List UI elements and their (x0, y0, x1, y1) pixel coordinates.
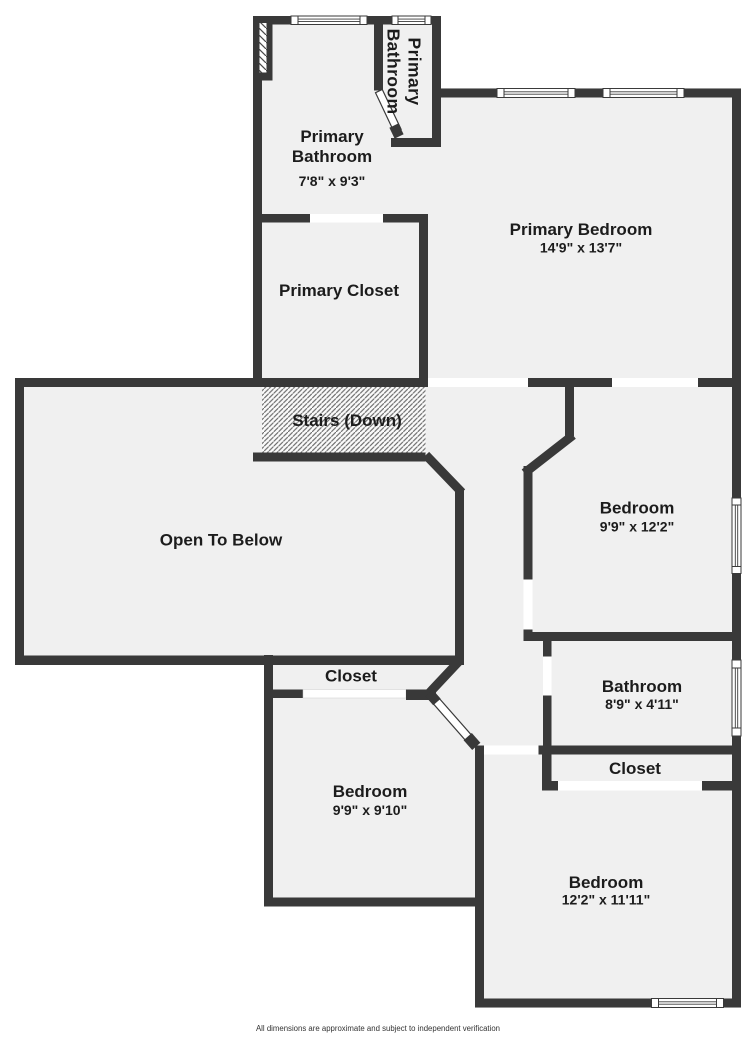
svg-text:All dimensions are approximate: All dimensions are approximate and subje… (256, 1024, 500, 1033)
svg-text:Bathroom: Bathroom (602, 677, 682, 696)
svg-text:Primary Closet: Primary Closet (279, 281, 399, 300)
svg-text:9'9" x 9'10": 9'9" x 9'10" (333, 802, 407, 818)
svg-text:8'9" x 4'11": 8'9" x 4'11" (605, 696, 679, 712)
svg-text:Primary: Primary (405, 38, 425, 106)
svg-text:Closet: Closet (325, 667, 377, 686)
svg-text:Open To Below: Open To Below (160, 531, 283, 550)
svg-text:Primary Bedroom: Primary Bedroom (510, 220, 653, 239)
svg-text:Bathroom: Bathroom (292, 147, 372, 166)
svg-text:12'2" x 11'11": 12'2" x 11'11" (562, 892, 650, 908)
svg-text:7'8" x 9'3": 7'8" x 9'3" (299, 173, 366, 189)
svg-text:14'9" x 13'7": 14'9" x 13'7" (540, 240, 622, 256)
svg-text:Primary: Primary (300, 127, 364, 146)
svg-text:Bedroom: Bedroom (569, 873, 644, 892)
svg-text:Bedroom: Bedroom (600, 499, 675, 518)
svg-text:Closet: Closet (609, 759, 661, 778)
svg-text:9'9" x 12'2": 9'9" x 12'2" (600, 519, 674, 535)
svg-text:Bathroom: Bathroom (384, 29, 404, 115)
svg-text:Bedroom: Bedroom (333, 782, 408, 801)
svg-text:Stairs (Down): Stairs (Down) (292, 411, 402, 430)
